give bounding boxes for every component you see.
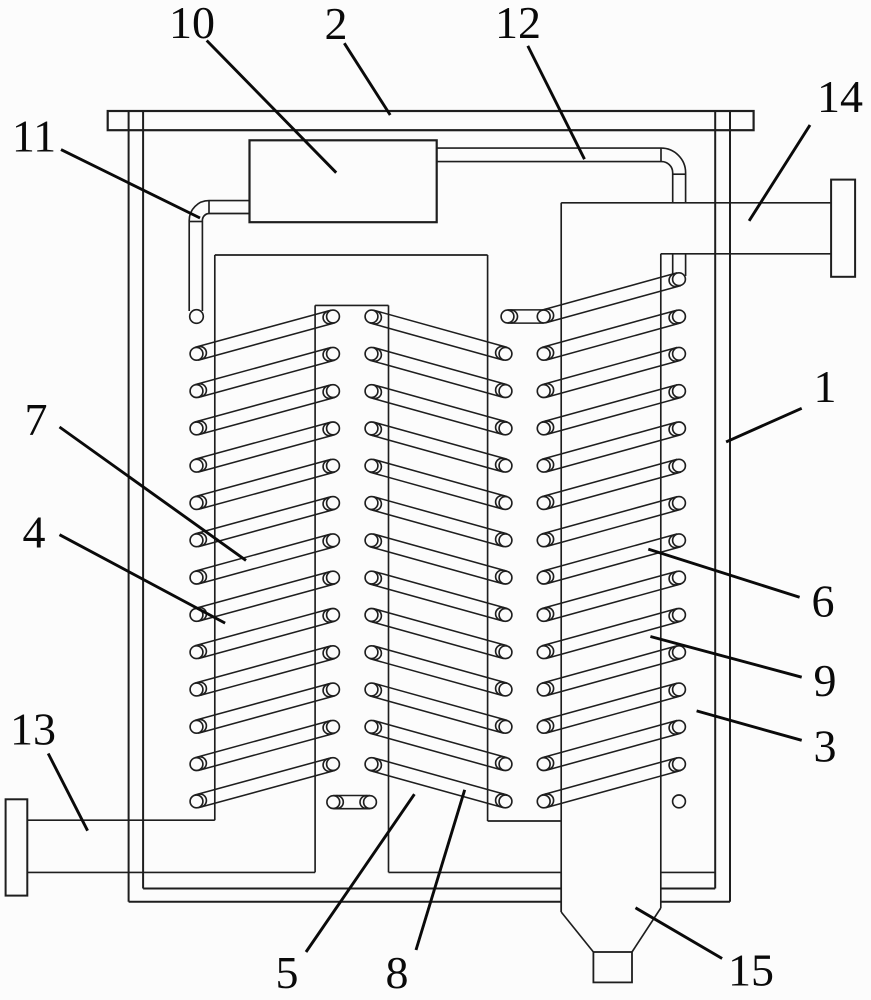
svg-text:9: 9: [814, 655, 837, 706]
svg-text:1: 1: [814, 361, 837, 412]
svg-text:2: 2: [325, 0, 348, 49]
svg-text:15: 15: [728, 944, 774, 995]
svg-text:8: 8: [386, 947, 409, 998]
svg-text:5: 5: [276, 947, 299, 998]
svg-text:12: 12: [495, 0, 541, 48]
svg-text:11: 11: [12, 111, 56, 162]
svg-text:6: 6: [812, 575, 835, 626]
svg-text:13: 13: [10, 704, 56, 755]
svg-text:3: 3: [814, 720, 837, 771]
svg-text:4: 4: [23, 507, 46, 558]
svg-text:14: 14: [817, 71, 863, 122]
svg-text:7: 7: [25, 394, 48, 445]
